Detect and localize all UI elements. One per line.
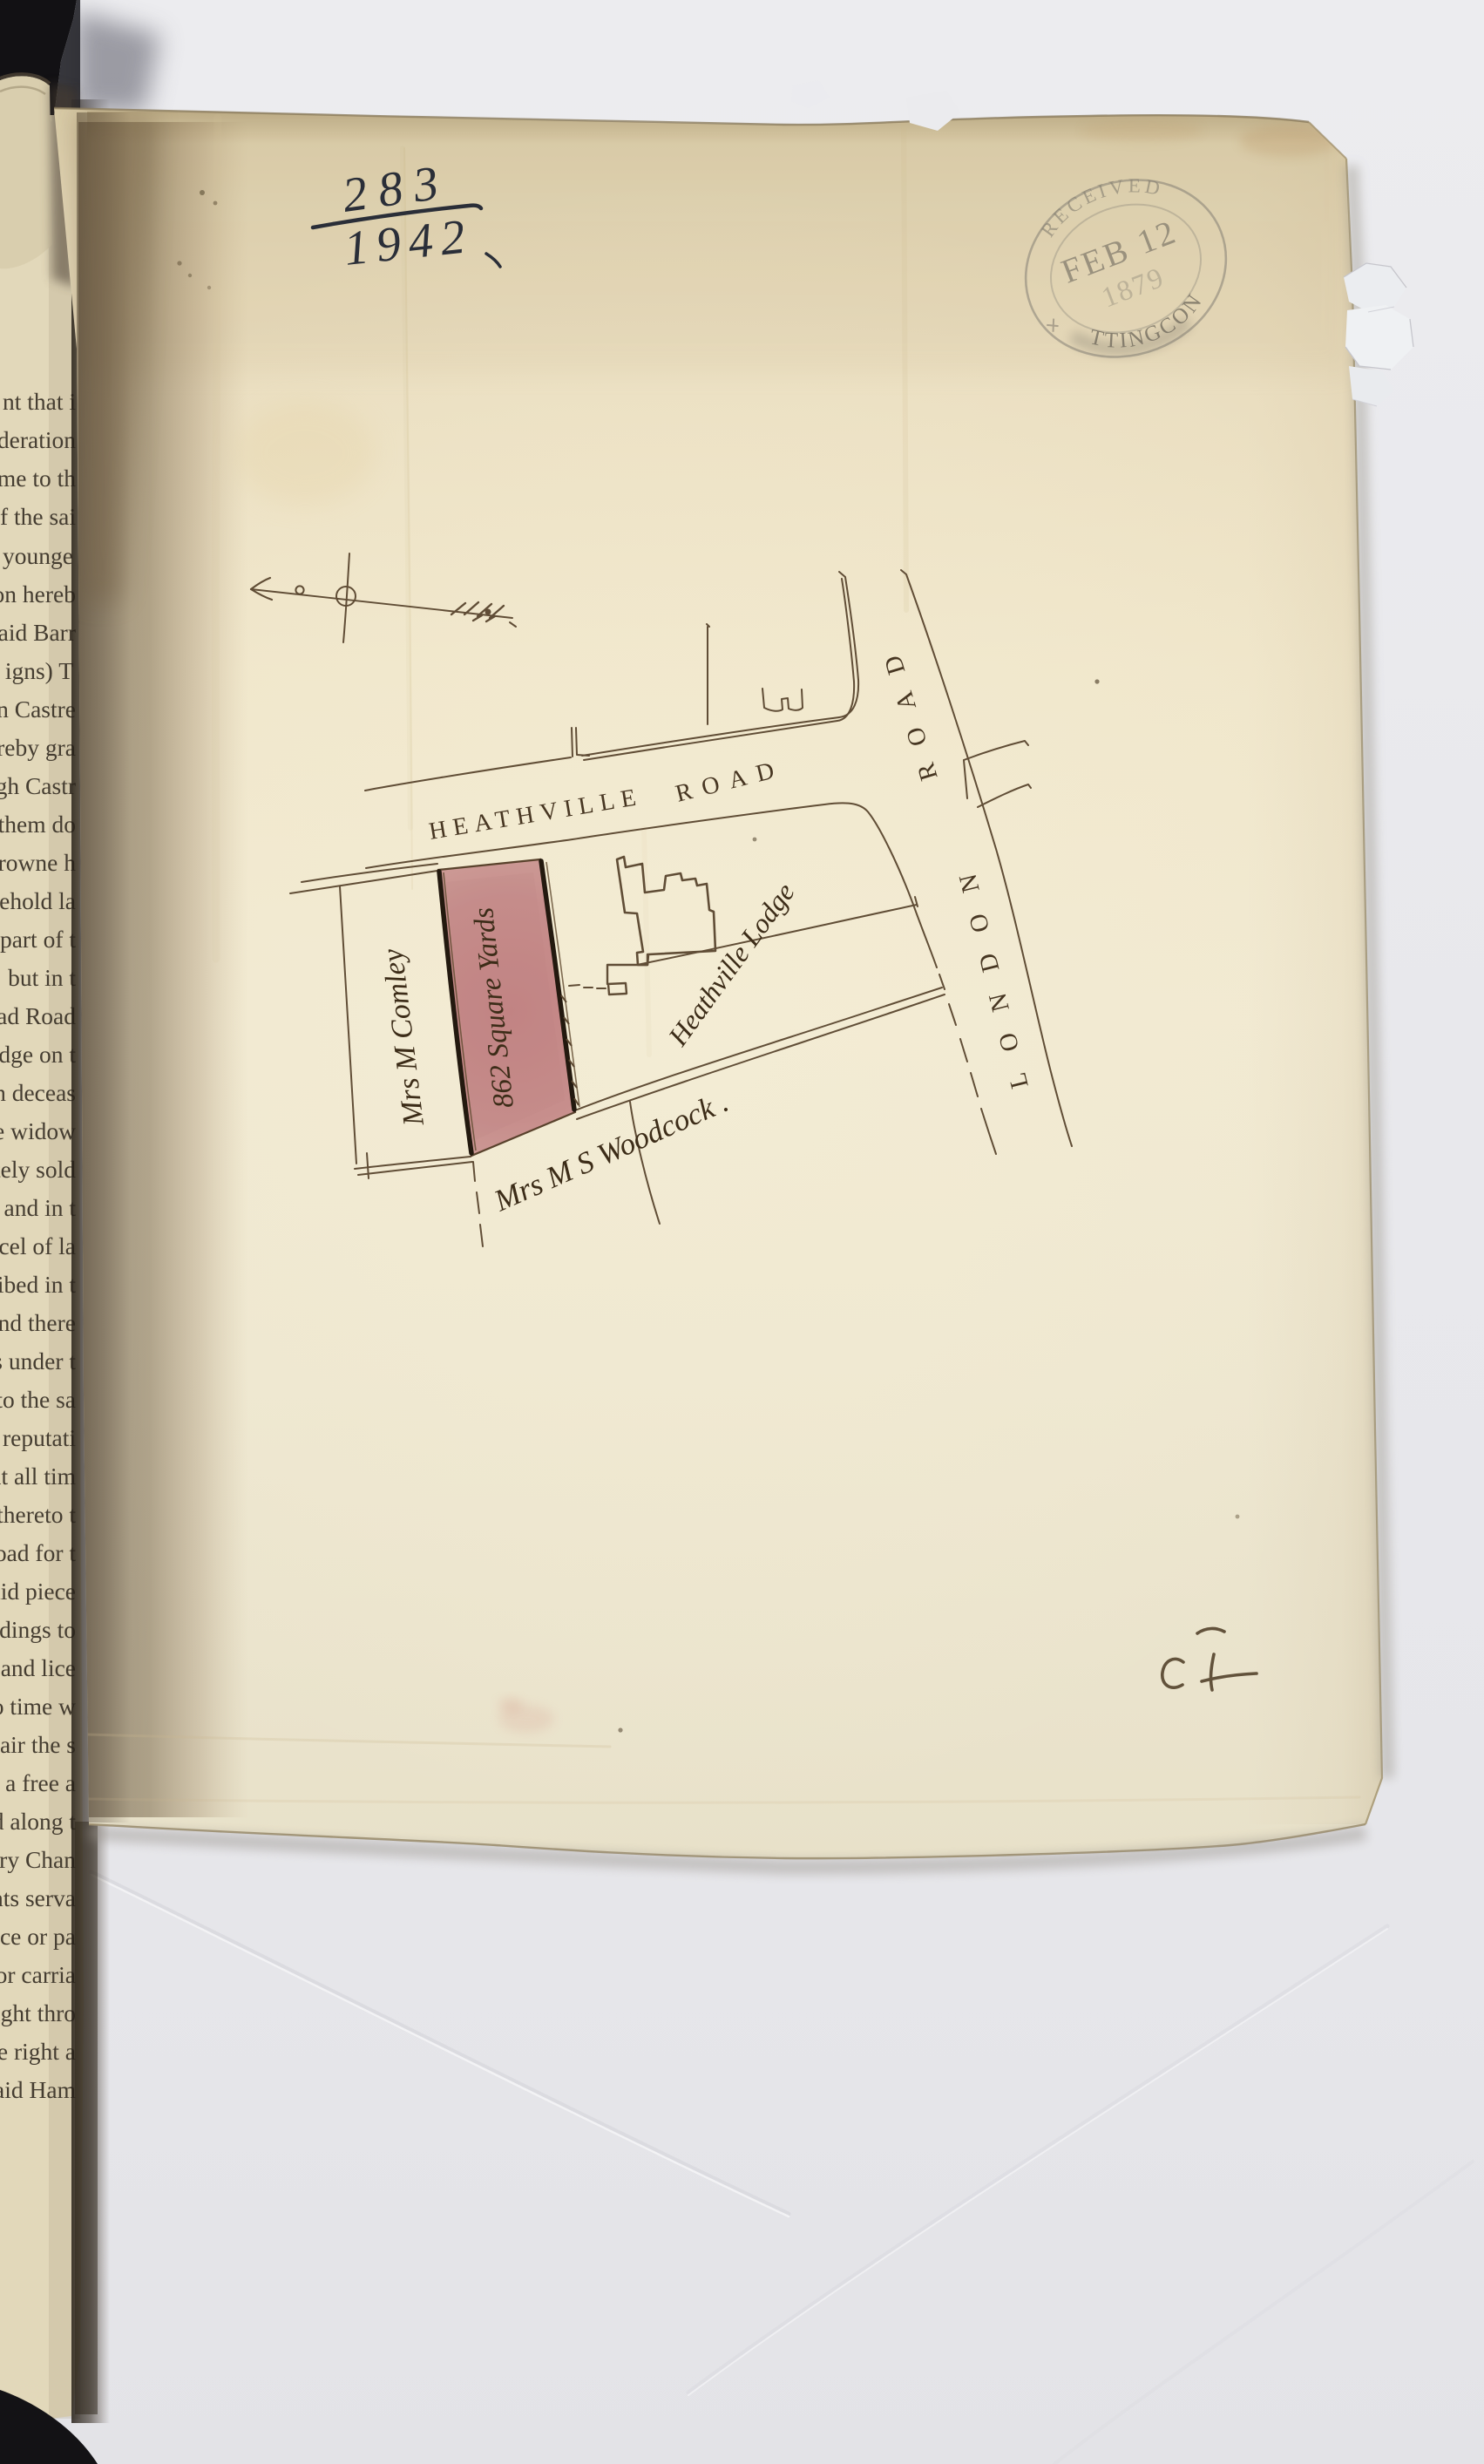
svg-text:rt of the sai: rt of the sai [0,503,76,530]
svg-text:me to th: me to th [0,465,76,492]
svg-text:thereto t: thereto t [0,1501,76,1528]
svg-text:and in t: and in t [4,1194,77,1221]
svg-text:to time w: to time w [0,1693,76,1720]
svg-text:ty and lice: ty and lice [0,1654,76,1681]
svg-text:right thro: right thro [0,1999,76,2026]
svg-text:part of t: part of t [0,926,76,953]
svg-text:odge on t: odge on t [0,1041,76,1068]
svg-text:iece or pa: iece or pa [0,1923,76,1950]
svg-text:nt that i: nt that i [3,388,76,415]
svg-text:to the sa: to the sa [0,1386,76,1413]
svg-text:but in t: but in t [8,964,76,991]
svg-text:Barry Chan: Barry Chan [0,1846,76,1873]
svg-text:ad Road: ad Road [0,1002,76,1029]
svg-text:Browne h: Browne h [0,849,76,876]
svg-text:epair the s: epair the s [0,1731,76,1758]
svg-text:or carria: or carria [0,1961,76,1988]
svg-text:them do: them do [0,811,76,838]
svg-text:the widow: the widow [0,1117,76,1144]
svg-text:cribed in t: cribed in t [0,1271,76,1298]
svg-text:sehold la: sehold la [0,887,76,914]
svg-text:said Ham: said Ham [0,2076,76,2103]
svg-text:ugh Castr: ugh Castr [0,772,76,799]
svg-text:younge: younge [3,542,73,569]
svg-text:said piece: said piece [0,1578,76,1605]
svg-text:on hereb: on hereb [0,580,76,608]
svg-text:nd along t: nd along t [0,1808,76,1835]
svg-text:ants serva: ants serva [0,1884,76,1911]
svg-text:nsideration: nsideration [0,426,76,453]
svg-text:en deceas: en deceas [0,1079,76,1106]
svg-text:ildings to: ildings to [0,1616,76,1643]
svg-text:on Castre: on Castre [0,696,76,723]
svg-text:Road for t: Road for t [0,1539,76,1566]
svg-text:igns) T: igns) T [5,657,73,684]
svg-text:and there: and there [0,1309,76,1336]
svg-text:es under t: es under t [0,1347,76,1375]
svg-text:said Barr: said Barr [0,619,76,646]
svg-text:ute right a: ute right a [0,2038,76,2065]
svg-text:arcel of la: arcel of la [0,1232,76,1259]
svg-text:hereby gra: hereby gra [0,734,76,761]
svg-text:n a free a: n a free a [0,1769,76,1796]
svg-text:at all tim: at all tim [0,1463,76,1490]
svg-text:ately sold: ately sold [0,1156,76,1183]
svg-text:r reputati: r reputati [0,1424,76,1451]
